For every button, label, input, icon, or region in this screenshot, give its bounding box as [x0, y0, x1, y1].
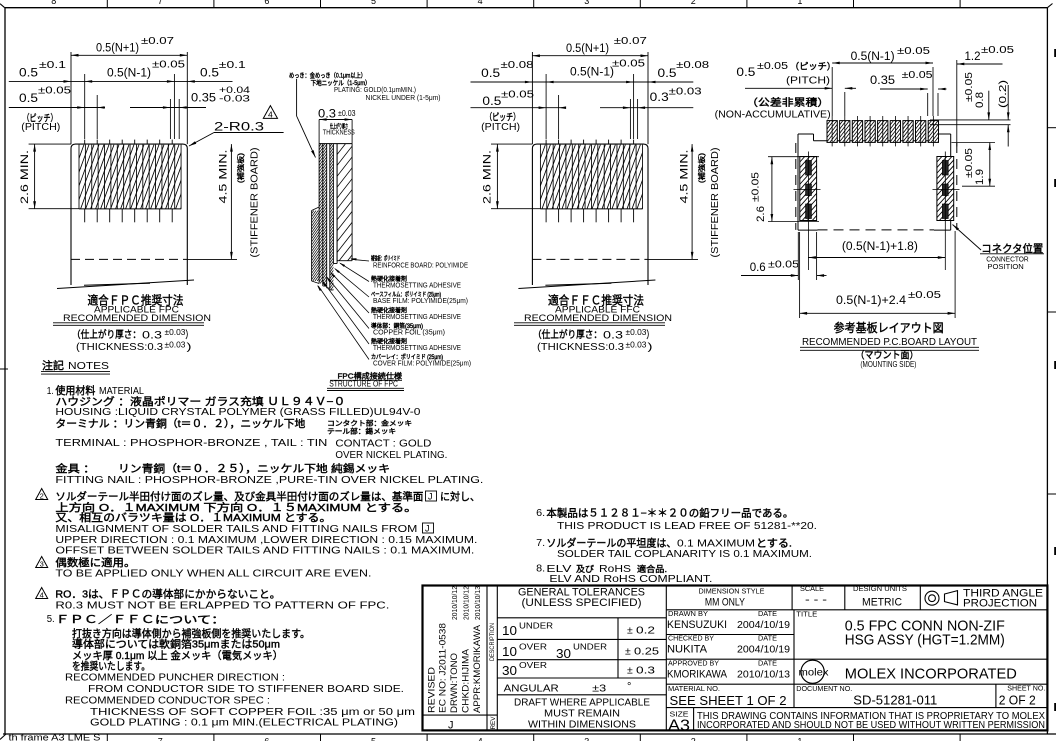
svg-text:DATE: DATE: [758, 611, 777, 618]
svg-text:7.: 7.: [536, 538, 545, 549]
svg-text:KMORIKAWA: KMORIKAWA: [667, 669, 728, 681]
svg-text:TO BE APPLIED ONLY WHEN ALL CI: TO BE APPLIED ONLY WHEN ALL CIRCUIT ARE …: [55, 568, 371, 580]
svg-text:(THICKNESS:0.3: (THICKNESS:0.3: [76, 342, 163, 353]
svg-text:0.5(N-1)+2.4: 0.5(N-1)+2.4: [836, 295, 907, 307]
svg-text:REINFORCE BOARD: POLYIMIDE: REINFORCE BOARD: POLYIMIDE: [373, 261, 468, 270]
svg-text:4: 4: [478, 737, 483, 742]
svg-text:): ): [187, 342, 192, 353]
svg-text:2: 2: [691, 0, 696, 6]
svg-text:4: 4: [40, 591, 44, 600]
svg-text:RECOMMENDED PUNCHER DIRECTION: RECOMMENDED PUNCHER DIRECTION :: [65, 672, 285, 684]
svg-text:UNDER: UNDER: [519, 622, 553, 631]
svg-text:NUKITA: NUKITA: [667, 644, 708, 656]
svg-text:DOCUMENT NO.: DOCUMENT NO.: [796, 686, 852, 693]
svg-text:±0.05: ±0.05: [38, 86, 72, 97]
svg-text:7: 7: [158, 0, 163, 6]
svg-text:BASE FILM: POLYIMIDE(25μm): BASE FILM: POLYIMIDE(25μm): [373, 296, 468, 305]
svg-text:COVER FILM: POLYIMIDE(25μm): COVER FILM: POLYIMIDE(25μm): [373, 359, 471, 368]
svg-text:（仕上がり厚さ：: （仕上がり厚さ：: [533, 328, 602, 341]
svg-text:DIMENSION STYLE: DIMENSION STYLE: [699, 589, 765, 596]
svg-text:7: 7: [158, 737, 163, 742]
svg-text:0.5: 0.5: [19, 67, 38, 79]
svg-text:R0.3 MUST NOT BE ERLAPPED TO: R0.3 MUST NOT BE ERLAPPED TO PATTERN OF …: [55, 600, 389, 612]
svg-text:DRAWN BY: DRAWN BY: [668, 611, 708, 618]
svg-text:THICKNESS: THICKNESS: [323, 128, 355, 137]
svg-text:DATE: DATE: [758, 661, 777, 668]
svg-text:±0.03: ±0.03: [669, 87, 703, 98]
svg-text:4: 4: [478, 0, 483, 6]
svg-text:±0.05: ±0.05: [908, 290, 942, 301]
svg-text:RECOMMENDED P.C.BOARD LAYOUT: RECOMMENDED P.C.BOARD LAYOUT: [802, 336, 978, 348]
svg-text:10: 10: [502, 623, 517, 638]
svg-text:WITHIN DIMENSIONS: WITHIN DIMENSIONS: [528, 720, 636, 731]
svg-text:(0.2): (0.2): [998, 80, 1009, 108]
svg-text:TITLE: TITLE: [796, 611, 817, 618]
svg-text:ＦＰＣ／ＦＦＣについて：: ＦＰＣ／ＦＦＣについて：: [55, 614, 225, 626]
svg-text:0.5: 0.5: [482, 96, 501, 108]
svg-text:th frame A3 LME S: th frame A3 LME S: [9, 733, 101, 742]
svg-text:MATERIAL NO.: MATERIAL NO.: [668, 686, 720, 693]
svg-text:0.3: 0.3: [650, 92, 669, 104]
svg-text:POSITION: POSITION: [987, 264, 1023, 271]
svg-text:(0.5(N-1)+1.8): (0.5(N-1)+1.8): [842, 241, 918, 253]
svg-text:2 OF 2: 2 OF 2: [999, 693, 1036, 708]
svg-text:2: 2: [691, 737, 696, 742]
svg-text:±0.03: ±0.03: [165, 340, 186, 350]
svg-text:2010/10/13: 2010/10/13: [475, 586, 482, 620]
svg-text:0.5: 0.5: [658, 68, 677, 80]
svg-text:6.: 6.: [536, 508, 545, 519]
svg-text:HOUSING :LIQUID CRYSTAL POLYME: HOUSING :LIQUID CRYSTAL POLYMER (GRASS F…: [55, 406, 420, 418]
svg-text:コネクタ位置: コネクタ位置: [981, 242, 1043, 255]
svg-text:30: 30: [502, 663, 517, 678]
svg-text:MUST REMAIN: MUST REMAIN: [544, 709, 620, 720]
svg-text:(NON-ACCUMULATIVE): (NON-ACCUMULATIVE): [715, 109, 831, 121]
svg-text:NICKEL UNDER (1-5μm): NICKEL UNDER (1-5μm): [366, 93, 441, 102]
svg-text:COPPER FOIL (35μm): COPPER FOIL (35μm): [373, 328, 445, 337]
svg-text:3: 3: [584, 737, 589, 742]
svg-text:RECOMMENDED CONDUCTOR SPEC :: RECOMMENDED CONDUCTOR SPEC :: [65, 695, 270, 707]
svg-text:J: J: [448, 720, 454, 732]
svg-text:0.3: 0.3: [142, 330, 162, 342]
svg-text:±3: ±3: [592, 683, 606, 695]
svg-text:): ): [648, 342, 653, 353]
svg-text:OVER: OVER: [519, 643, 547, 652]
svg-text:2-R0.3: 2-R0.3: [214, 122, 264, 134]
svg-text:PROJECTION: PROJECTION: [963, 597, 1037, 609]
svg-text:±0.03: ±0.03: [338, 109, 356, 118]
svg-text:10: 10: [502, 644, 517, 659]
svg-text:OVER NICKEL PLATING.: OVER NICKEL PLATING.: [335, 449, 447, 461]
svg-text:FITTING NAIL : PHOSPHOR-BRONZE: FITTING NAIL : PHOSPHOR-BRONZE ,PURE-TIN…: [55, 474, 483, 486]
svg-text:0.35: 0.35: [870, 75, 895, 87]
svg-text:SOLDER TAIL COPLANARITY IS 0.1: SOLDER TAIL COPLANARITY IS 0.1 MAXIMUM.: [557, 548, 812, 560]
svg-text:1.2: 1.2: [965, 51, 981, 63]
svg-text:）: ）: [647, 329, 654, 341]
svg-text:TERMINAL : PHOSPHOR-BRONZE , T: TERMINAL : PHOSPHOR-BRONZE , TAIL : TIN: [55, 437, 327, 449]
svg-text:30: 30: [556, 646, 571, 661]
svg-text:0.5(N-1): 0.5(N-1): [570, 67, 614, 79]
svg-text:5.: 5.: [47, 614, 55, 625]
svg-text:REVISED: REVISED: [427, 667, 438, 713]
svg-text:HSG ASSY (HGT=1.2MM): HSG ASSY (HGT=1.2MM): [845, 633, 1005, 649]
svg-text:8: 8: [51, 0, 56, 6]
svg-text:- - -: - - -: [805, 594, 827, 606]
svg-text:0.25: 0.25: [634, 646, 659, 658]
svg-text:MOLEX INCORPORATED: MOLEX INCORPORATED: [845, 666, 1017, 683]
svg-text:THERMOSETTING ADHESIVE: THERMOSETTING ADHESIVE: [373, 343, 461, 352]
svg-text:APPR:KMORIKAWA: APPR:KMORIKAWA: [472, 624, 483, 713]
svg-text:3: 3: [40, 560, 44, 569]
svg-text:(補強板): (補強板): [236, 153, 245, 183]
svg-text:6: 6: [264, 0, 269, 6]
svg-text:（公差非累積）: （公差非累積）: [746, 96, 829, 109]
svg-text:±: ±: [625, 646, 631, 658]
svg-text:(UNLESS SPECIFIED): (UNLESS SPECIFIED): [522, 597, 642, 609]
svg-text:molex: molex: [799, 667, 830, 679]
svg-text:0.5(N+1): 0.5(N+1): [566, 43, 609, 55]
svg-text:±0.03: ±0.03: [626, 340, 647, 350]
svg-text:±: ±: [627, 665, 633, 677]
svg-text:8.: 8.: [536, 564, 545, 575]
svg-text:(PITCH): (PITCH): [481, 121, 520, 133]
svg-text:（仕上がり厚さ：: （仕上がり厚さ：: [72, 328, 141, 341]
svg-text:±0.05: ±0.05: [902, 70, 934, 81]
svg-text:THIS PRODUCT IS LEAD FREE OF 5: THIS PRODUCT IS LEAD FREE OF 51281-**20.: [557, 520, 817, 532]
svg-text:導体部については軟銅箔35μmまたは50μm: 導体部については軟銅箔35μmまたは50μm: [72, 638, 280, 651]
svg-text:0.2: 0.2: [636, 625, 655, 637]
svg-text:0.5: 0.5: [19, 93, 38, 105]
svg-text:DESCRIPTION: DESCRIPTION: [489, 623, 496, 661]
svg-text:INCORPORATED AND SHOULD NOT BE: INCORPORATED AND SHOULD NOT BE USED WITH…: [697, 720, 1045, 731]
svg-text:0.3: 0.3: [636, 665, 655, 677]
svg-text:MM ONLY: MM ONLY: [705, 597, 746, 609]
svg-text:±0.03: ±0.03: [626, 327, 647, 337]
svg-text:ELV AND RoHS COMPLIANT.: ELV AND RoHS COMPLIANT.: [549, 573, 712, 585]
svg-text:THERMOSETTING ADHESIVE: THERMOSETTING ADHESIVE: [373, 312, 461, 321]
svg-text:1: 1: [797, 0, 802, 6]
svg-text:DATE: DATE: [758, 636, 777, 643]
svg-text:DESIGN UNITS: DESIGN UNITS: [853, 586, 907, 593]
svg-text:(PITCH): (PITCH): [21, 121, 60, 133]
svg-text:±0.05: ±0.05: [612, 59, 646, 70]
svg-text:(THICKNESS:0.3: (THICKNESS:0.3: [537, 342, 624, 353]
svg-text:2: 2: [40, 492, 44, 501]
svg-text:テール部：錫メッキ: テール部：錫メッキ: [327, 426, 396, 435]
svg-text:2.6 MIN.: 2.6 MIN.: [19, 150, 31, 204]
svg-text:SCALE: SCALE: [800, 586, 824, 593]
svg-text:6: 6: [264, 737, 269, 742]
svg-text:°: °: [627, 681, 631, 693]
svg-text:CONTACT : GOLD: CONTACT : GOLD: [335, 438, 431, 450]
svg-text:1: 1: [797, 737, 802, 742]
svg-text:4.5 MIN.: 4.5 MIN.: [218, 150, 230, 204]
svg-text:REV: REV: [490, 716, 497, 730]
svg-text:±0.1: ±0.1: [219, 60, 247, 71]
svg-text:±0.03: ±0.03: [165, 327, 186, 337]
svg-text:±0.1: ±0.1: [39, 60, 67, 71]
svg-text:0.3: 0.3: [603, 330, 623, 342]
svg-text:CHKD:HIJIMA: CHKD:HIJIMA: [461, 648, 472, 713]
svg-text:GOLD PLATING : 0.1 μm MIN.(ELE: GOLD PLATING : 0.1 μm MIN.(ELECTRICAL PL…: [90, 717, 398, 729]
svg-text:0.5(N+1): 0.5(N+1): [96, 43, 139, 55]
svg-text:めっき：金めっき（0.1μm以上）: めっき：金めっき（0.1μm以上）: [289, 71, 366, 80]
svg-text:ANGULAR: ANGULAR: [504, 683, 559, 695]
svg-text:CHECKED BY: CHECKED BY: [668, 636, 714, 643]
svg-text:(PITCH): (PITCH): [786, 75, 830, 87]
svg-text:APPROVED BY: APPROVED BY: [668, 661, 719, 668]
svg-text:(STIFFENER BOARD): (STIFFENER BOARD): [249, 148, 261, 258]
svg-text:DRWN:TONO: DRWN:TONO: [449, 653, 460, 713]
svg-text:に対し、: に対し、: [440, 490, 480, 503]
svg-text:注記: 注記: [42, 359, 65, 372]
svg-text:SD-51281-011: SD-51281-011: [853, 693, 937, 708]
svg-text:CONNECTOR: CONNECTOR: [986, 257, 1028, 264]
svg-text:KENSUZUKI: KENSUZUKI: [667, 619, 727, 631]
svg-text:±0.05: ±0.05: [897, 46, 931, 57]
svg-text:SHEET NO.: SHEET NO.: [1007, 686, 1045, 693]
svg-text:0.35: 0.35: [191, 93, 216, 105]
svg-text:0.6: 0.6: [750, 262, 766, 274]
svg-text:2010/10/12: 2010/10/12: [464, 586, 471, 620]
svg-text:(MOUNTING SIDE): (MOUNTING SIDE): [860, 360, 916, 369]
svg-text:±0.08: ±0.08: [501, 60, 535, 71]
svg-text:OVER: OVER: [519, 661, 547, 670]
svg-text:±: ±: [627, 625, 633, 637]
svg-text:±0.05: ±0.05: [751, 171, 762, 202]
svg-text:(STIFFENER BOARD): (STIFFENER BOARD): [709, 148, 721, 258]
svg-text:0.5: 0.5: [200, 67, 219, 79]
svg-text:2004/10/19: 2004/10/19: [737, 645, 790, 656]
svg-text:-0.03: -0.03: [219, 94, 250, 105]
svg-text:5: 5: [371, 737, 376, 742]
svg-text:2010/10/13: 2010/10/13: [737, 670, 790, 681]
svg-text:±0.05: ±0.05: [768, 260, 800, 271]
svg-text:±0.05: ±0.05: [757, 61, 789, 72]
svg-text:2010/10/12: 2010/10/12: [452, 586, 459, 620]
svg-text:0.5(N-1): 0.5(N-1): [851, 51, 895, 63]
svg-text:NOTES: NOTES: [68, 360, 109, 372]
svg-text:±0.05: ±0.05: [501, 90, 535, 101]
svg-text:A3: A3: [668, 718, 690, 735]
svg-text:コンタクト部：金メッキ: コンタクト部：金メッキ: [327, 418, 412, 427]
svg-text:0.5: 0.5: [481, 68, 500, 80]
svg-text:THERMOSETTING ADHESIVE: THERMOSETTING ADHESIVE: [373, 281, 461, 290]
svg-text:0.3: 0.3: [318, 107, 336, 121]
svg-text:2.6: 2.6: [755, 206, 767, 222]
svg-text:FROM CONDUCTOR SIDE TO STIFFEN: FROM CONDUCTOR SIDE TO STIFFENER BOARD S…: [88, 683, 404, 695]
svg-text:4: 4: [268, 109, 273, 119]
svg-text:参考基板レイアウト図: 参考基板レイアウト図: [834, 320, 944, 335]
svg-text:METRIC: METRIC: [862, 597, 902, 609]
svg-text:ターミナル ：リン青銅（t＝０．２），ニッケル下地: ターミナル ：リン青銅（t＝０．２），ニッケル下地: [55, 417, 306, 430]
svg-text:±0.07: ±0.07: [141, 36, 175, 47]
svg-text:±0.05: ±0.05: [152, 60, 186, 71]
svg-text:1.9: 1.9: [974, 169, 986, 185]
svg-text:EC NO: J2011-0538: EC NO: J2011-0538: [438, 623, 449, 713]
svg-text:1.: 1.: [47, 386, 54, 397]
svg-text:（ピッチ）: （ピッチ）: [790, 62, 836, 72]
svg-text:本製品は５１２８１−＊＊２０の鉛フリー品である。: 本製品は５１２８１−＊＊２０の鉛フリー品である。: [546, 507, 793, 520]
svg-text:±0.07: ±0.07: [614, 36, 648, 47]
svg-text:5: 5: [371, 0, 376, 6]
svg-text:2.6 MIN.: 2.6 MIN.: [482, 150, 494, 204]
svg-text:0.8: 0.8: [974, 92, 986, 108]
svg-text:SEE SHEET 1 OF 2: SEE SHEET 1 OF 2: [670, 693, 787, 708]
svg-text:UNDER: UNDER: [573, 643, 607, 652]
svg-text:(補強板): (補強板): [697, 153, 706, 183]
svg-text:0.5(N-1): 0.5(N-1): [107, 68, 151, 80]
svg-text:DRAFT WHERE APPLICABLE: DRAFT WHERE APPLICABLE: [514, 698, 650, 709]
svg-text:0.5: 0.5: [736, 67, 755, 79]
svg-text:）: ）: [186, 329, 193, 341]
svg-text:STRUCTURE OF FPC: STRUCTURE OF FPC: [329, 379, 398, 388]
svg-text:2004/10/19: 2004/10/19: [737, 620, 790, 631]
svg-text:±0.08: ±0.08: [676, 60, 710, 71]
svg-text:J: J: [428, 492, 433, 502]
svg-text:4.5 MIN.: 4.5 MIN.: [679, 150, 691, 204]
svg-text:OFFSET BETWEEN SOLDER TAILS AN: OFFSET BETWEEN SOLDER TAILS AND FITTING …: [55, 545, 474, 557]
svg-text:±0.05: ±0.05: [981, 45, 1015, 56]
svg-text:J: J: [425, 524, 430, 534]
svg-text:3: 3: [584, 0, 589, 6]
